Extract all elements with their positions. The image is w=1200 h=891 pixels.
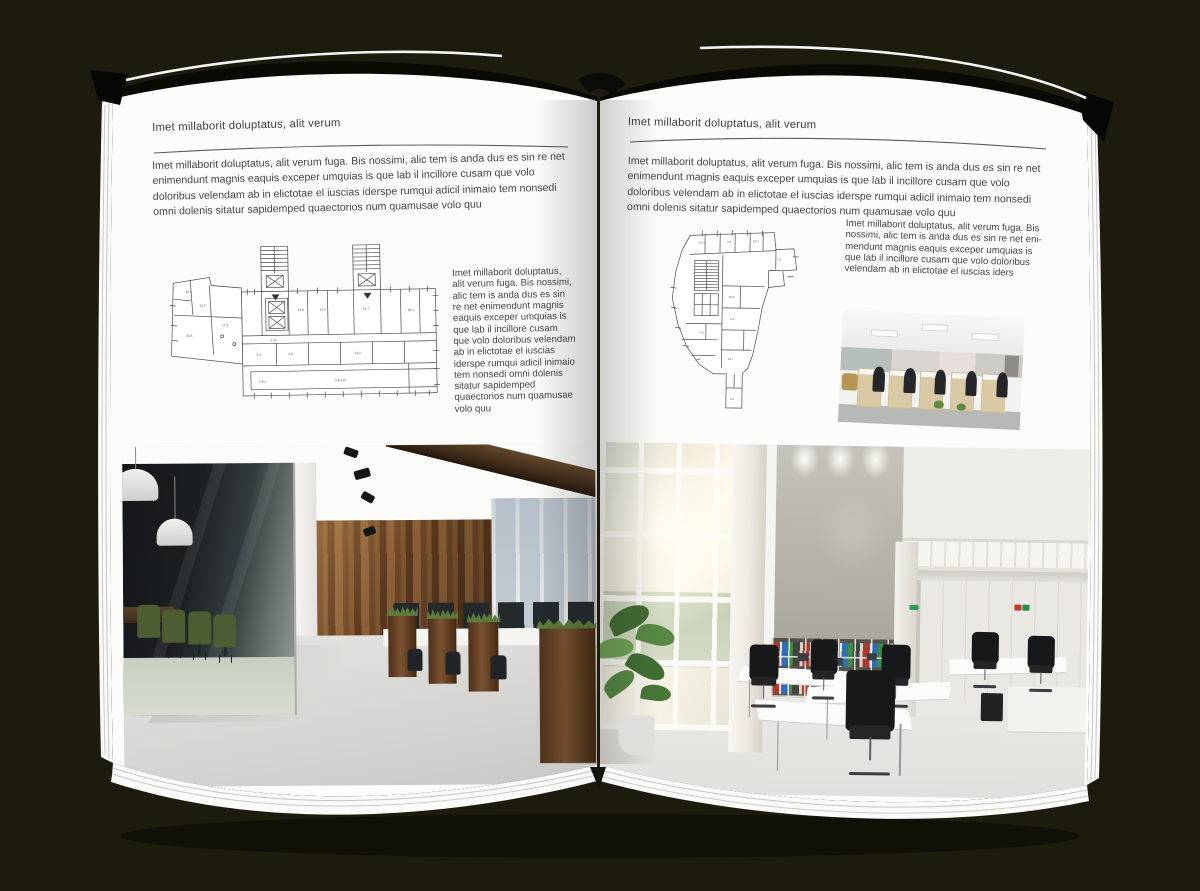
pendant-lamp xyxy=(157,519,193,546)
office-chair xyxy=(903,368,916,393)
white-corner-desk xyxy=(1007,686,1086,733)
green-chair xyxy=(162,609,185,642)
photo-white-pillar xyxy=(295,463,317,637)
svg-text:17.2: 17.2 xyxy=(222,323,228,327)
svg-text:12.8: 12.8 xyxy=(298,308,304,312)
office-chair xyxy=(810,640,838,700)
small-plant xyxy=(933,400,943,408)
plant-pot xyxy=(618,715,655,756)
svg-text:8.1: 8.1 xyxy=(700,331,705,335)
svg-text:8.6: 8.6 xyxy=(288,352,293,356)
photo-office-chair xyxy=(445,652,460,675)
svg-text:30.1: 30.1 xyxy=(408,308,414,312)
right-floor-plan-drawing: 14.69.221.4 7.816.35.4 8.112.73.9 xyxy=(655,227,812,415)
safety-sign-red xyxy=(1014,604,1021,610)
office-chair xyxy=(748,644,778,707)
svg-text:12.7: 12.7 xyxy=(727,357,733,361)
left-floor-plan-drawing: 20.631.523.6 17.22.7412.8 11.324.730.1 9… xyxy=(157,241,442,408)
ceiling-light xyxy=(871,329,899,337)
photo-office-chair xyxy=(490,655,506,679)
svg-text:1-й з.: 1-й з. xyxy=(259,380,267,384)
left-page-header: Imet millaborit doluptatus, alit verum xyxy=(152,117,341,134)
magazine-spread-mockup: Imet millaborit doluptatus, alit verum I… xyxy=(0,0,1200,891)
photo-mezzanine xyxy=(903,447,1090,541)
left-page-caption: Imet millaborit doluptatus, alit verum f… xyxy=(452,266,578,415)
green-chair xyxy=(137,605,160,638)
ceiling-light xyxy=(971,333,999,341)
right-page-intro: Imet millaborit doluptatus, alit verum f… xyxy=(627,154,1042,223)
office-chair xyxy=(965,371,978,396)
office-chair xyxy=(996,372,1009,397)
pendant-lamp xyxy=(122,469,158,501)
svg-text:14.6: 14.6 xyxy=(699,241,705,245)
office-chair xyxy=(872,366,885,391)
photo-glass-meeting-room xyxy=(122,463,296,716)
svg-text:3.9: 3.9 xyxy=(730,397,735,401)
right-office-photo-small xyxy=(838,310,1025,430)
svg-text:2.74: 2.74 xyxy=(270,338,276,342)
right-page-header: Imet millaborit doluptatus, alit verum xyxy=(628,116,817,131)
svg-text:21.4: 21.4 xyxy=(753,239,759,243)
svg-text:16.3: 16.3 xyxy=(728,295,734,299)
ceiling-light xyxy=(922,324,948,332)
mezzanine-railing xyxy=(902,538,1088,572)
svg-text:2-й зал: 2-й зал xyxy=(335,378,346,382)
svg-text:23.6: 23.6 xyxy=(186,334,192,338)
right-page-caption: Imet millaborit doluptatus, alit verum f… xyxy=(844,218,1044,280)
photo-concrete-wall xyxy=(774,445,904,639)
photo-lounge-seat xyxy=(841,373,858,391)
svg-text:9.4: 9.4 xyxy=(256,353,261,357)
photo-planter-box-large xyxy=(540,627,597,762)
svg-text:5.4: 5.4 xyxy=(730,317,735,321)
exit-sign xyxy=(909,604,918,609)
meeting-room-floor xyxy=(123,657,294,716)
svg-text:7.8: 7.8 xyxy=(777,258,782,262)
office-chair xyxy=(971,632,999,688)
svg-text:31.5: 31.5 xyxy=(200,304,206,308)
left-page-intro: Imet millaborit doluptatus, alit verum f… xyxy=(152,150,569,221)
green-chair xyxy=(214,614,237,647)
svg-text:11.3: 11.3 xyxy=(320,308,326,312)
office-chair-foreground xyxy=(845,670,896,776)
svg-text:14.2: 14.2 xyxy=(354,351,360,355)
safety-sign-green xyxy=(1023,604,1030,610)
office-chair xyxy=(1027,636,1055,692)
right-header-rule xyxy=(626,131,1050,155)
waste-bin xyxy=(981,693,1003,721)
green-chair xyxy=(188,612,211,645)
office-chair xyxy=(934,369,947,394)
svg-text:9.2: 9.2 xyxy=(727,240,732,244)
left-office-photo xyxy=(122,444,597,787)
svg-text:24.7: 24.7 xyxy=(363,307,369,311)
svg-text:20.6: 20.6 xyxy=(185,290,191,294)
right-office-photo-large xyxy=(596,442,1090,800)
photo-office-chair xyxy=(407,649,422,671)
